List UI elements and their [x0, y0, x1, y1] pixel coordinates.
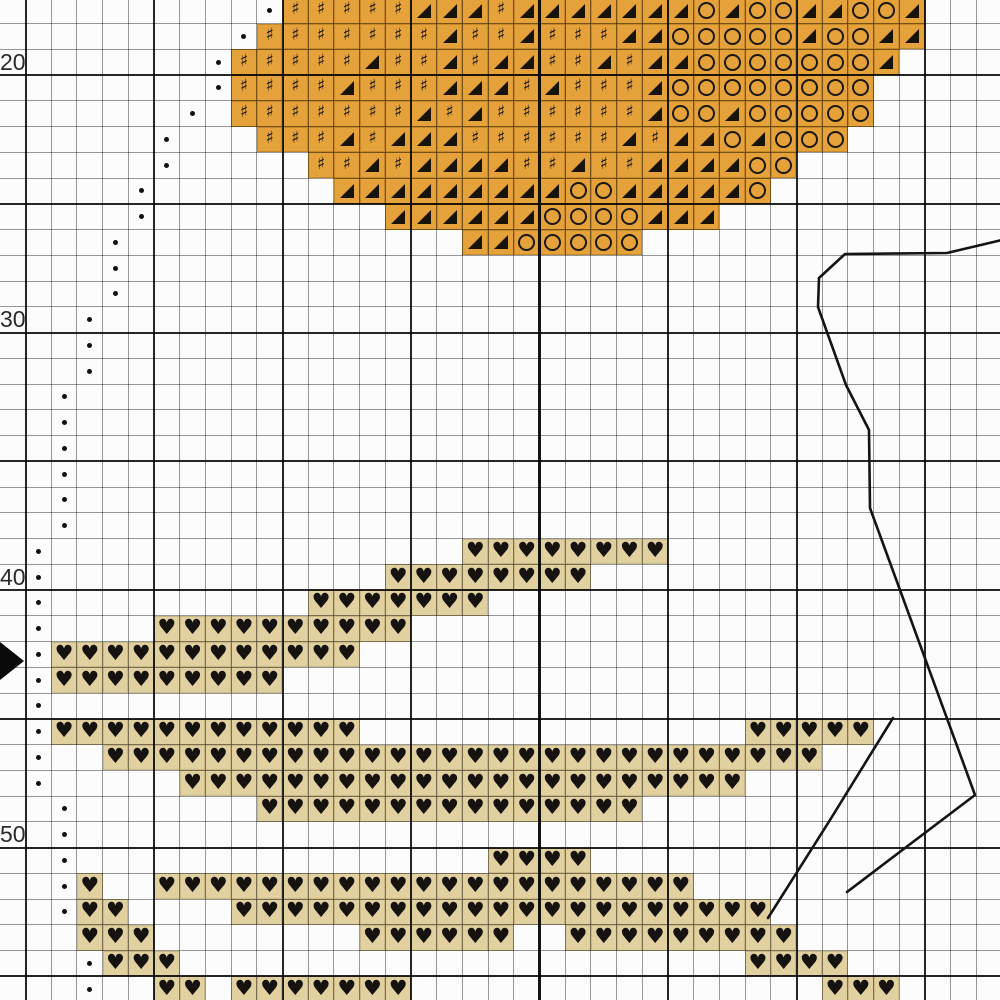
stitch-cell-heart: ♥ [360, 770, 386, 796]
triangle-symbol-icon [674, 184, 688, 198]
circle-symbol-icon [775, 157, 792, 174]
triangle-symbol-icon [468, 235, 482, 249]
heart-symbol-icon: ♥ [517, 566, 536, 587]
heart-symbol-icon: ♥ [235, 772, 254, 793]
heart-symbol-icon: ♥ [183, 746, 202, 767]
stitch-cell-heart: ♥ [205, 667, 231, 693]
triangle-symbol-icon [468, 184, 482, 198]
backstitch-line [818, 240, 1000, 892]
stitch-cell-triangle [899, 24, 925, 50]
stitch-cell-heart: ♥ [411, 745, 437, 771]
row-number-label: 50 [0, 823, 21, 846]
stitch-cell-heart: ♥ [77, 667, 103, 693]
heart-symbol-icon: ♥ [492, 746, 511, 767]
stitch-cell-triangle [822, 0, 848, 24]
stitch-cell-dot [26, 590, 52, 616]
heart-symbol-icon: ♥ [337, 772, 356, 793]
heart-symbol-icon: ♥ [389, 591, 408, 612]
stitch-cell-heart: ♥ [51, 719, 77, 745]
stitch-cell-heart: ♥ [874, 976, 900, 1000]
stitch-cell-sharp: ♯ [283, 49, 309, 75]
sharp-symbol-icon: ♯ [317, 130, 325, 147]
stitch-cell-heart: ♥ [488, 564, 514, 590]
sharp-symbol-icon: ♯ [445, 104, 453, 121]
triangle-symbol-icon [468, 210, 482, 224]
stitch-cell-heart: ♥ [51, 667, 77, 693]
stitch-cell-triangle [462, 178, 488, 204]
sharp-symbol-icon: ♯ [240, 78, 248, 95]
heart-symbol-icon: ♥ [260, 978, 279, 999]
triangle-symbol-icon [417, 210, 431, 224]
stitch-cell-heart: ♥ [437, 770, 463, 796]
triangle-symbol-icon [520, 184, 534, 198]
stitch-cell-triangle [694, 127, 720, 153]
stitch-cell-circle [771, 0, 797, 24]
stitch-cell-heart: ♥ [488, 848, 514, 874]
sharp-symbol-icon: ♯ [574, 104, 582, 121]
stitch-cell-heart: ♥ [437, 590, 463, 616]
stitch-cell-heart: ♥ [771, 745, 797, 771]
triangle-symbol-icon [571, 158, 585, 172]
heart-symbol-icon: ♥ [569, 926, 588, 947]
grid-line-horizontal [0, 306, 1000, 307]
heart-symbol-icon: ♥ [209, 772, 228, 793]
stitch-cell-heart: ♥ [283, 770, 309, 796]
stitch-cell-triangle [437, 204, 463, 230]
circle-symbol-icon [724, 28, 741, 45]
triangle-symbol-icon [391, 184, 405, 198]
circle-symbol-icon [749, 28, 766, 45]
stitch-cell-heart: ♥ [488, 745, 514, 771]
sharp-symbol-icon: ♯ [291, 27, 299, 44]
circle-symbol-icon [775, 105, 792, 122]
stitch-cell-dot [205, 49, 231, 75]
triangle-symbol-icon [700, 132, 714, 146]
stitch-cell-heart: ♥ [694, 925, 720, 951]
stitch-cell-triangle [642, 0, 668, 24]
heart-symbol-icon: ♥ [569, 797, 588, 818]
heart-symbol-icon: ♥ [157, 978, 176, 999]
sharp-symbol-icon: ♯ [368, 130, 376, 147]
stitch-cell-dot [51, 899, 77, 925]
triangle-symbol-icon [648, 210, 662, 224]
stitch-cell-dot [77, 333, 103, 359]
stitch-cell-heart: ♥ [154, 951, 180, 977]
triangle-symbol-icon [648, 4, 662, 18]
stitch-cell-dot [51, 410, 77, 436]
stitch-cell-sharp: ♯ [360, 127, 386, 153]
heart-symbol-icon: ♥ [517, 875, 536, 896]
dot-symbol-icon [216, 85, 221, 90]
sharp-symbol-icon: ♯ [317, 1, 325, 18]
triangle-symbol-icon [494, 184, 508, 198]
stitch-cell-heart: ♥ [437, 745, 463, 771]
stitch-cell-heart: ♥ [488, 770, 514, 796]
stitch-cell-heart: ♥ [797, 951, 823, 977]
circle-symbol-icon [698, 79, 715, 96]
stitch-cell-heart: ♥ [462, 873, 488, 899]
heart-symbol-icon: ♥ [569, 746, 588, 767]
stitch-cell-heart: ♥ [360, 899, 386, 925]
heart-symbol-icon: ♥ [286, 875, 305, 896]
heart-symbol-icon: ♥ [877, 978, 896, 999]
stitch-cell-heart: ♥ [180, 719, 206, 745]
stitch-cell-triangle [462, 204, 488, 230]
dot-symbol-icon [36, 729, 41, 734]
stitch-cell-heart: ♥ [77, 719, 103, 745]
stitch-cell-triangle [719, 152, 745, 178]
stitch-cell-heart: ♥ [334, 590, 360, 616]
heart-symbol-icon: ♥ [286, 772, 305, 793]
stitch-cell-heart: ♥ [617, 873, 643, 899]
stitch-cell-sharp: ♯ [360, 24, 386, 50]
heart-symbol-icon: ♥ [337, 978, 356, 999]
heart-symbol-icon: ♥ [157, 746, 176, 767]
sharp-symbol-icon: ♯ [291, 1, 299, 18]
stitch-cell-dot [77, 976, 103, 1000]
stitch-cell-heart: ♥ [668, 899, 694, 925]
heart-symbol-icon: ♥ [286, 720, 305, 741]
heart-symbol-icon: ♥ [749, 952, 768, 973]
stitch-cell-sharp: ♯ [617, 49, 643, 75]
sharp-symbol-icon: ♯ [625, 78, 633, 95]
stitch-cell-heart: ♥ [540, 848, 566, 874]
stitch-cell-triangle [462, 0, 488, 24]
sharp-symbol-icon: ♯ [600, 130, 608, 147]
stitch-cell-heart: ♥ [462, 539, 488, 565]
heart-symbol-icon: ♥ [183, 978, 202, 999]
sharp-symbol-icon: ♯ [368, 27, 376, 44]
stitch-cell-heart: ♥ [822, 719, 848, 745]
stitch-cell-circle [822, 24, 848, 50]
heart-symbol-icon: ♥ [440, 591, 459, 612]
stitch-cell-triangle [591, 0, 617, 24]
heart-symbol-icon: ♥ [723, 926, 742, 947]
stitch-cell-heart: ♥ [771, 925, 797, 951]
heart-symbol-icon: ♥ [260, 617, 279, 638]
stitch-cell-heart: ♥ [591, 873, 617, 899]
stitch-cell-heart: ♥ [385, 770, 411, 796]
heart-symbol-icon: ♥ [337, 591, 356, 612]
heart-symbol-icon: ♥ [235, 746, 254, 767]
triangle-symbol-icon [494, 55, 508, 69]
stitch-cell-triangle [668, 178, 694, 204]
heart-symbol-icon: ♥ [646, 746, 665, 767]
stitch-cell-heart: ♥ [565, 873, 591, 899]
heart-symbol-icon: ♥ [209, 720, 228, 741]
stitch-cell-heart: ♥ [668, 745, 694, 771]
stitch-cell-heart: ♥ [308, 796, 334, 822]
stitch-cell-heart: ♥ [283, 642, 309, 668]
heart-symbol-icon: ♥ [183, 875, 202, 896]
stitch-cell-triangle [411, 0, 437, 24]
heart-symbol-icon: ♥ [157, 643, 176, 664]
stitch-cell-heart: ♥ [591, 796, 617, 822]
sharp-symbol-icon: ♯ [291, 104, 299, 121]
heart-symbol-icon: ♥ [723, 772, 742, 793]
heart-symbol-icon: ♥ [260, 720, 279, 741]
triangle-symbol-icon [648, 29, 662, 43]
stitch-cell-heart: ♥ [617, 925, 643, 951]
stitch-cell-sharp: ♯ [257, 24, 283, 50]
heart-symbol-icon: ♥ [543, 540, 562, 561]
stitch-cell-circle [848, 49, 874, 75]
heart-symbol-icon: ♥ [466, 566, 485, 587]
dot-symbol-icon [164, 137, 169, 142]
sharp-symbol-icon: ♯ [420, 53, 428, 70]
triangle-symbol-icon [725, 4, 739, 18]
dot-symbol-icon [62, 420, 67, 425]
stitch-cell-heart: ♥ [360, 925, 386, 951]
stitch-cell-triangle [514, 0, 540, 24]
triangle-symbol-icon [700, 158, 714, 172]
heart-symbol-icon: ♥ [517, 849, 536, 870]
stitch-cell-triangle [694, 152, 720, 178]
heart-symbol-icon: ♥ [800, 952, 819, 973]
stitch-cell-triangle [437, 24, 463, 50]
heart-symbol-icon: ♥ [671, 875, 690, 896]
stitch-cell-heart: ♥ [231, 616, 257, 642]
stitch-cell-circle [719, 127, 745, 153]
heart-symbol-icon: ♥ [492, 540, 511, 561]
heart-symbol-icon: ♥ [517, 540, 536, 561]
stitch-cell-heart: ♥ [308, 976, 334, 1000]
stitch-cell-sharp: ♯ [411, 24, 437, 50]
dot-symbol-icon [36, 652, 41, 657]
grid-line-vertical [128, 0, 129, 1000]
dot-symbol-icon [87, 987, 92, 992]
stitch-cell-triangle [360, 152, 386, 178]
dot-symbol-icon [164, 163, 169, 168]
stitch-cell-sharp: ♯ [308, 24, 334, 50]
grid-line-horizontal [0, 512, 1000, 513]
stitch-cell-triangle [488, 178, 514, 204]
triangle-symbol-icon [468, 158, 482, 172]
stitch-cell-triangle [540, 0, 566, 24]
stitch-cell-heart: ♥ [308, 899, 334, 925]
stitch-cell-triangle [591, 49, 617, 75]
heart-symbol-icon: ♥ [646, 772, 665, 793]
sharp-symbol-icon: ♯ [343, 104, 351, 121]
stitch-cell-heart: ♥ [565, 539, 591, 565]
stitch-cell-dot [26, 564, 52, 590]
triangle-symbol-icon [545, 4, 559, 18]
stitch-cell-circle [591, 204, 617, 230]
stitch-cell-triangle [437, 0, 463, 24]
triangle-symbol-icon [520, 29, 534, 43]
stitch-cell-heart: ♥ [128, 951, 154, 977]
stitch-cell-dot [154, 127, 180, 153]
stitch-cell-heart: ♥ [308, 590, 334, 616]
sharp-symbol-icon: ♯ [625, 156, 633, 173]
stitch-cell-triangle [874, 24, 900, 50]
stitch-cell-circle [745, 75, 771, 101]
stitch-cell-triangle [899, 0, 925, 24]
stitch-cell-triangle [411, 178, 437, 204]
triangle-symbol-icon [443, 81, 457, 95]
stitch-cell-heart: ♥ [565, 564, 591, 590]
stitch-cell-triangle [617, 24, 643, 50]
stitch-cell-heart: ♥ [154, 667, 180, 693]
stitch-cell-heart: ♥ [437, 796, 463, 822]
triangle-symbol-icon [622, 132, 636, 146]
stitch-cell-heart: ♥ [103, 745, 129, 771]
circle-symbol-icon [852, 28, 869, 45]
heart-symbol-icon: ♥ [80, 720, 99, 741]
heart-symbol-icon: ♥ [594, 772, 613, 793]
heart-symbol-icon: ♥ [543, 900, 562, 921]
heart-symbol-icon: ♥ [337, 900, 356, 921]
stitch-cell-heart: ♥ [103, 951, 129, 977]
heart-symbol-icon: ♥ [312, 797, 331, 818]
stitch-cell-sharp: ♯ [642, 127, 668, 153]
stitch-cell-heart: ♥ [514, 873, 540, 899]
stitch-cell-triangle [514, 49, 540, 75]
heart-symbol-icon: ♥ [492, 797, 511, 818]
heart-symbol-icon: ♥ [594, 540, 613, 561]
stitch-cell-dot [128, 204, 154, 230]
stitch-cell-heart: ♥ [205, 745, 231, 771]
stitch-cell-sharp: ♯ [591, 152, 617, 178]
heart-symbol-icon: ♥ [440, 926, 459, 947]
circle-symbol-icon [827, 131, 844, 148]
heart-symbol-icon: ♥ [235, 643, 254, 664]
heart-symbol-icon: ♥ [826, 952, 845, 973]
stitch-cell-circle [617, 204, 643, 230]
stitch-cell-circle [822, 75, 848, 101]
sharp-symbol-icon: ♯ [394, 27, 402, 44]
circle-symbol-icon [775, 28, 792, 45]
grid-line-horizontal [0, 332, 1000, 334]
stitch-cell-heart: ♥ [411, 590, 437, 616]
stitch-cell-heart: ♥ [411, 899, 437, 925]
circle-symbol-icon [775, 2, 792, 19]
stitch-cell-heart: ♥ [154, 719, 180, 745]
sharp-symbol-icon: ♯ [471, 130, 479, 147]
heart-symbol-icon: ♥ [260, 797, 279, 818]
stitch-cell-heart: ♥ [514, 796, 540, 822]
sharp-symbol-icon: ♯ [651, 130, 659, 147]
stitch-cell-heart: ♥ [848, 719, 874, 745]
stitch-cell-circle [694, 49, 720, 75]
stitch-cell-heart: ♥ [462, 745, 488, 771]
heart-symbol-icon: ♥ [55, 720, 74, 741]
stitch-cell-heart: ♥ [462, 590, 488, 616]
heart-symbol-icon: ♥ [414, 772, 433, 793]
stitch-cell-triangle [411, 204, 437, 230]
stitch-cell-circle [848, 101, 874, 127]
stitch-cell-dot [103, 255, 129, 281]
stitch-cell-triangle [668, 49, 694, 75]
triangle-symbol-icon [340, 81, 354, 95]
triangle-symbol-icon [417, 132, 431, 146]
stitch-cell-triangle [385, 178, 411, 204]
grid-line-horizontal [0, 384, 1000, 385]
heart-symbol-icon: ♥ [337, 746, 356, 767]
stitch-cell-heart: ♥ [231, 976, 257, 1000]
heart-symbol-icon: ♥ [440, 566, 459, 587]
stitch-cell-sharp: ♯ [334, 152, 360, 178]
stitch-cell-heart: ♥ [385, 590, 411, 616]
stitch-cell-sharp: ♯ [488, 127, 514, 153]
heart-symbol-icon: ♥ [209, 746, 228, 767]
heart-symbol-icon: ♥ [106, 900, 125, 921]
stitch-cell-heart: ♥ [642, 899, 668, 925]
heart-symbol-icon: ♥ [260, 875, 279, 896]
stitch-cell-triangle [565, 152, 591, 178]
sharp-symbol-icon: ♯ [574, 78, 582, 95]
heart-symbol-icon: ♥ [492, 772, 511, 793]
heart-symbol-icon: ♥ [363, 900, 382, 921]
stitch-cell-triangle [694, 178, 720, 204]
heart-symbol-icon: ♥ [209, 617, 228, 638]
circle-symbol-icon [724, 79, 741, 96]
stitch-cell-dot [154, 152, 180, 178]
triangle-symbol-icon [468, 4, 482, 18]
stitch-cell-heart: ♥ [231, 719, 257, 745]
stitch-cell-heart: ♥ [308, 642, 334, 668]
stitch-cell-circle [668, 75, 694, 101]
dot-symbol-icon [36, 781, 41, 786]
stitch-cell-heart: ♥ [205, 616, 231, 642]
heart-symbol-icon: ♥ [492, 926, 511, 947]
heart-symbol-icon: ♥ [620, 746, 639, 767]
heart-symbol-icon: ♥ [440, 900, 459, 921]
heart-symbol-icon: ♥ [671, 746, 690, 767]
stitch-cell-heart: ♥ [719, 925, 745, 951]
heart-symbol-icon: ♥ [106, 720, 125, 741]
stitch-cell-heart: ♥ [719, 770, 745, 796]
stitch-cell-circle [745, 178, 771, 204]
stitch-cell-sharp: ♯ [385, 101, 411, 127]
heart-symbol-icon: ♥ [106, 746, 125, 767]
stitch-cell-sharp: ♯ [231, 49, 257, 75]
heart-symbol-icon: ♥ [389, 875, 408, 896]
stitch-cell-heart: ♥ [360, 796, 386, 822]
stitch-cell-circle [745, 0, 771, 24]
triangle-symbol-icon [648, 107, 662, 121]
heart-symbol-icon: ♥ [80, 900, 99, 921]
stitch-cell-triangle [642, 24, 668, 50]
stitch-cell-heart: ♥ [540, 564, 566, 590]
stitch-cell-heart: ♥ [488, 873, 514, 899]
heart-symbol-icon: ♥ [466, 772, 485, 793]
stitch-cell-circle [694, 24, 720, 50]
sharp-symbol-icon: ♯ [497, 1, 505, 18]
stitch-cell-heart: ♥ [231, 873, 257, 899]
stitch-cell-heart: ♥ [180, 976, 206, 1000]
triangle-symbol-icon [700, 184, 714, 198]
heart-symbol-icon: ♥ [594, 746, 613, 767]
heart-symbol-icon: ♥ [697, 772, 716, 793]
triangle-symbol-icon [879, 29, 893, 43]
circle-symbol-icon [698, 28, 715, 45]
sharp-symbol-icon: ♯ [368, 1, 376, 18]
stitch-cell-triangle [642, 204, 668, 230]
triangle-symbol-icon [674, 210, 688, 224]
stitch-cell-triangle [617, 0, 643, 24]
circle-symbol-icon [518, 234, 535, 251]
stitch-cell-dot [51, 487, 77, 513]
triangle-symbol-icon [494, 158, 508, 172]
triangle-symbol-icon [520, 4, 534, 18]
stitch-cell-dot [51, 436, 77, 462]
stitch-cell-heart: ♥ [771, 719, 797, 745]
circle-symbol-icon [852, 54, 869, 71]
stitch-cell-sharp: ♯ [488, 24, 514, 50]
triangle-symbol-icon [417, 4, 431, 18]
dot-symbol-icon [87, 369, 92, 374]
